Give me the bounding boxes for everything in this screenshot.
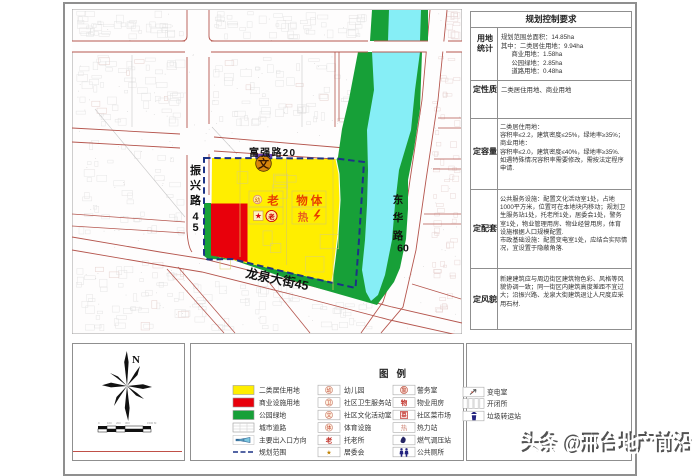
- svg-text:二类居住用地: 二类居住用地: [259, 385, 300, 394]
- svg-text:幼: 幼: [326, 387, 331, 394]
- svg-text:社区文化活动室: 社区文化活动室: [344, 410, 392, 419]
- svg-text:公共厕所: 公共厕所: [417, 447, 444, 456]
- svg-text:老: 老: [325, 435, 333, 444]
- svg-text:卫: 卫: [326, 401, 331, 407]
- svg-text:0: 0: [98, 421, 100, 425]
- svg-text:200: 200: [116, 421, 121, 425]
- svg-text:60: 60: [397, 243, 409, 255]
- svg-text:幼: 幼: [255, 196, 261, 204]
- svg-text:老: 老: [267, 212, 275, 221]
- svg-text:商业设施用地: 商业设施用地: [259, 398, 300, 407]
- svg-text:路: 路: [190, 193, 202, 207]
- svg-text:菜: 菜: [400, 411, 407, 419]
- svg-text:体: 体: [311, 194, 323, 208]
- svg-text:物业用房: 物业用房: [417, 398, 444, 407]
- svg-text:热力站: 热力站: [417, 423, 438, 432]
- svg-text:城市道路: 城市道路: [259, 423, 286, 432]
- svg-text:5: 5: [192, 222, 198, 234]
- svg-text:变电室: 变电室: [487, 387, 508, 396]
- svg-text:东: 东: [393, 193, 404, 206]
- svg-text:物: 物: [296, 194, 308, 208]
- svg-text:社区菜市场: 社区菜市场: [417, 410, 451, 419]
- svg-text:文: 文: [326, 412, 331, 419]
- svg-text:规划范围: 规划范围: [259, 447, 286, 456]
- svg-text:幼儿园: 幼儿园: [344, 385, 365, 394]
- svg-text:开闭所: 开闭所: [487, 399, 508, 408]
- svg-text:★: ★: [255, 212, 262, 221]
- svg-text:燃气调压站: 燃气调压站: [417, 435, 451, 444]
- svg-text:公园绿地: 公园绿地: [259, 410, 286, 419]
- svg-text:★: ★: [326, 449, 331, 456]
- svg-text:主要出入口方向: 主要出入口方向: [259, 435, 307, 444]
- svg-text:300: 300: [125, 421, 130, 425]
- svg-text:托老所: 托老所: [344, 435, 365, 444]
- svg-text:振: 振: [190, 163, 201, 177]
- svg-text:1500 M: 1500 M: [147, 421, 157, 425]
- svg-text:居委会: 居委会: [344, 447, 365, 456]
- svg-text:富强路20: 富强路20: [249, 146, 295, 159]
- svg-text:100: 100: [107, 421, 112, 425]
- svg-text:警: 警: [401, 387, 406, 394]
- svg-text:N: N: [132, 354, 140, 366]
- svg-text:垃圾转运站: 垃圾转运站: [487, 411, 521, 420]
- svg-text:老: 老: [266, 194, 279, 208]
- svg-text:热: 热: [401, 423, 408, 432]
- svg-text:热: 热: [298, 211, 309, 224]
- svg-text:社区卫生服务站: 社区卫生服务站: [344, 398, 392, 407]
- svg-text:物: 物: [401, 398, 408, 407]
- svg-text:路: 路: [393, 229, 404, 242]
- svg-text:体: 体: [326, 425, 331, 432]
- svg-text:体育设施: 体育设施: [344, 423, 371, 432]
- svg-text:兴: 兴: [190, 178, 201, 192]
- svg-text:华: 华: [393, 211, 404, 224]
- svg-text:警务室: 警务室: [417, 385, 438, 394]
